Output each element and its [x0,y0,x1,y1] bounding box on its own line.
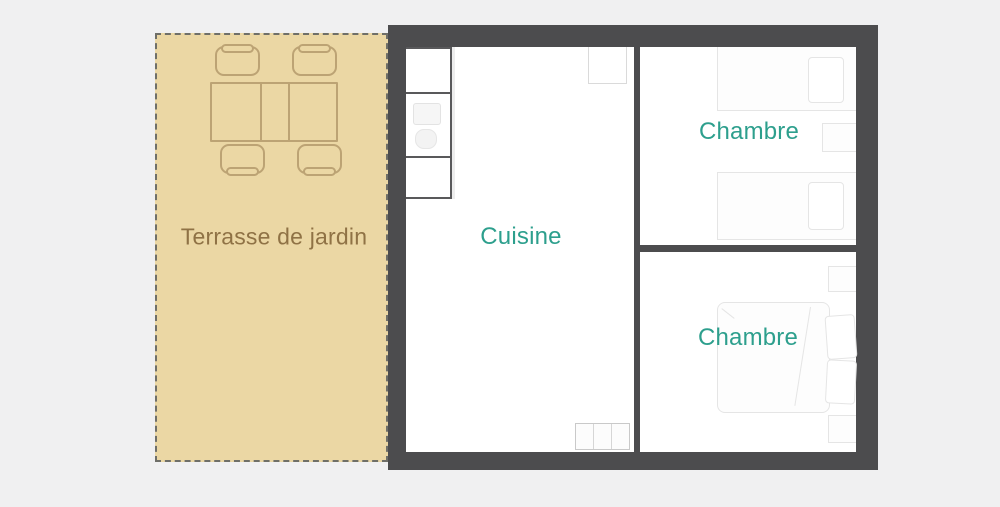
blanket-corner-icon [721,308,734,319]
dining-table-icon [210,82,338,142]
chambre-top-label: Chambre [699,118,799,146]
nightstand-icon [828,415,856,443]
pillow-icon [808,57,844,103]
double-bed-icon [717,302,830,413]
floor-plan: Terrasse de jardin Cuisine [0,0,1000,507]
pillow-icon [825,314,858,360]
pillow-icon [808,182,844,230]
chair-back-icon [298,44,331,53]
terrace-label: Terrasse de jardin [181,224,367,251]
chair-back-icon [226,167,259,176]
chair-back-icon [303,167,336,176]
building-interior: Cuisine Chambre Chambre [406,47,856,452]
single-bed-icon [717,172,856,240]
chair-icon [215,46,260,76]
sink-icon [413,103,441,125]
cuisine-label: Cuisine [480,223,561,251]
partition-wall-horizontal [634,245,856,252]
chair-icon [220,144,265,174]
building-outline: Cuisine Chambre Chambre [388,25,878,470]
stove-icon [415,129,437,149]
single-bed-icon [717,47,856,111]
blanket-fold-icon [794,307,811,406]
chair-back-icon [221,44,254,53]
cabinet-icon [588,47,627,84]
chair-icon [292,46,337,76]
terrace-area: Terrasse de jardin [155,33,388,462]
kitchen-counter-icon [406,47,452,199]
chair-icon [297,144,342,174]
pillow-icon [825,359,857,405]
nightstand-icon [822,123,856,152]
nightstand-icon [828,266,856,292]
chambre-bottom-label: Chambre [698,324,798,352]
appliance-icon [575,423,630,450]
